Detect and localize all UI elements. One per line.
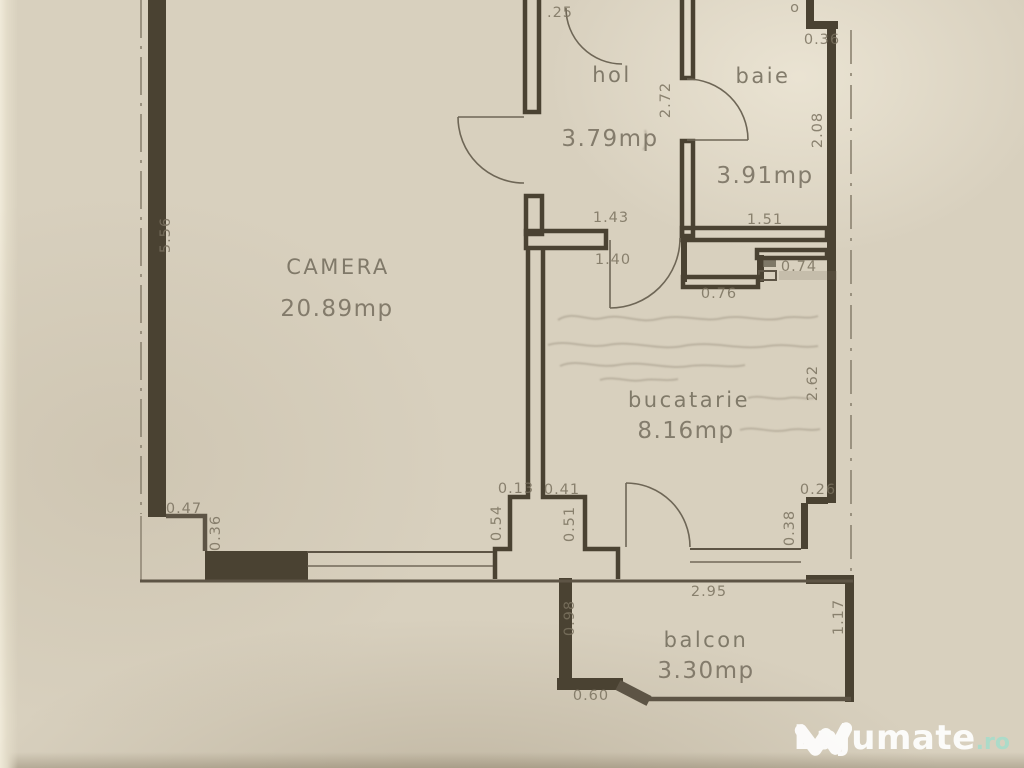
dim-balcony-width: 2.95 <box>691 584 727 600</box>
dim-top-fragment: o <box>790 0 800 16</box>
baie-door-arc <box>687 79 748 140</box>
wall-camera-hol <box>526 196 542 234</box>
entry-door-arc <box>566 8 622 64</box>
room-area-balcon: 3.30mp <box>657 658 754 684</box>
dim-kitchen-step-width: 0.26 <box>800 482 836 498</box>
dim-entry-top: .25 <box>547 5 573 21</box>
room-label-camera: CAMERA <box>286 255 390 279</box>
dim-pier-top-left: 0.13 <box>498 481 534 497</box>
wall-divider-right-edge <box>543 248 618 579</box>
wall-kitchen-step-v <box>801 503 808 549</box>
room-label-balcon: balcon <box>664 628 749 652</box>
wall-baie-left-bottom <box>682 141 693 236</box>
dim-hol-height: 2.72 <box>658 82 674 118</box>
wall-balcony-right <box>845 578 854 702</box>
dim-hol-opening-top: 1.43 <box>593 210 629 226</box>
dim-baie-right-height: 2.08 <box>810 112 826 148</box>
room-labels: CAMERA 20.89mp hol 3.79mp baie 3.91mp bu… <box>280 63 813 684</box>
room-area-bucatarie: 8.16mp <box>637 418 734 444</box>
lajumate-logo-icon <box>794 718 852 762</box>
walls-solid <box>141 0 854 702</box>
room-area-baie: 3.91mp <box>716 163 813 189</box>
room-area-camera: 20.89mp <box>280 296 393 322</box>
dim-camera-step-width: 0.47 <box>166 501 202 517</box>
dim-notch-width: 0.36 <box>804 32 840 48</box>
wall-balcony-diagonal <box>618 685 649 701</box>
room-label-bucatarie: bucatarie <box>628 388 750 412</box>
wall-camera-bottom <box>205 551 308 582</box>
balcony-door-arc <box>626 483 690 547</box>
room-label-baie: baie <box>736 64 791 88</box>
dim-left-height: 5.56 <box>158 217 174 253</box>
dim-baie-width: 1.51 <box>747 212 783 228</box>
floor-plan-drawing: CAMERA 20.89mp hol 3.79mp baie 3.91mp bu… <box>0 0 1024 768</box>
wall-baie-left-top <box>682 0 693 78</box>
dimension-labels: 5.56 .25 o 2.72 0.36 2.08 1.51 1.43 1.40… <box>158 0 847 704</box>
kitchen-door-arc <box>610 238 680 308</box>
wall-left-exterior <box>148 0 166 517</box>
floor-plan-photo: CAMERA 20.89mp hol 3.79mp baie 3.91mp bu… <box>0 0 1024 768</box>
dim-camera-step-height: 0.36 <box>208 515 224 551</box>
wall-kitchen-top-right <box>757 250 827 258</box>
dim-balcony-bottom-left: 0.60 <box>573 688 609 704</box>
wall-right-exterior <box>827 24 836 503</box>
dim-balcony-right-height: 1.17 <box>831 599 847 635</box>
dim-pier-left-height: 0.54 <box>489 505 505 541</box>
dim-kitchen-top-right: 0.74 <box>781 259 817 275</box>
wall-baie-bottom <box>682 228 827 240</box>
dim-pier-right-height: 0.51 <box>562 506 578 542</box>
watermark-tld: .ro <box>976 730 1010 755</box>
dim-hol-opening-bottom: 1.40 <box>595 252 631 268</box>
wall-hol-left <box>525 0 539 112</box>
dim-balcony-left-height: 0.98 <box>562 600 578 636</box>
wall-kitchen-step-h <box>806 497 828 504</box>
wall-camera-step <box>166 516 205 551</box>
dim-kitchen-top-left: 0.76 <box>701 286 737 302</box>
dim-kitchen-right-height: 2.62 <box>805 365 821 401</box>
dim-pier-top-right: 0.41 <box>544 482 580 498</box>
watermark-lajumate: Lajumate.ro <box>794 718 1010 758</box>
room-area-hol: 3.79mp <box>561 126 658 152</box>
dim-kitchen-step-height: 0.38 <box>782 510 798 546</box>
room-label-hol: hol <box>592 63 632 87</box>
camera-door-arc <box>458 117 524 183</box>
